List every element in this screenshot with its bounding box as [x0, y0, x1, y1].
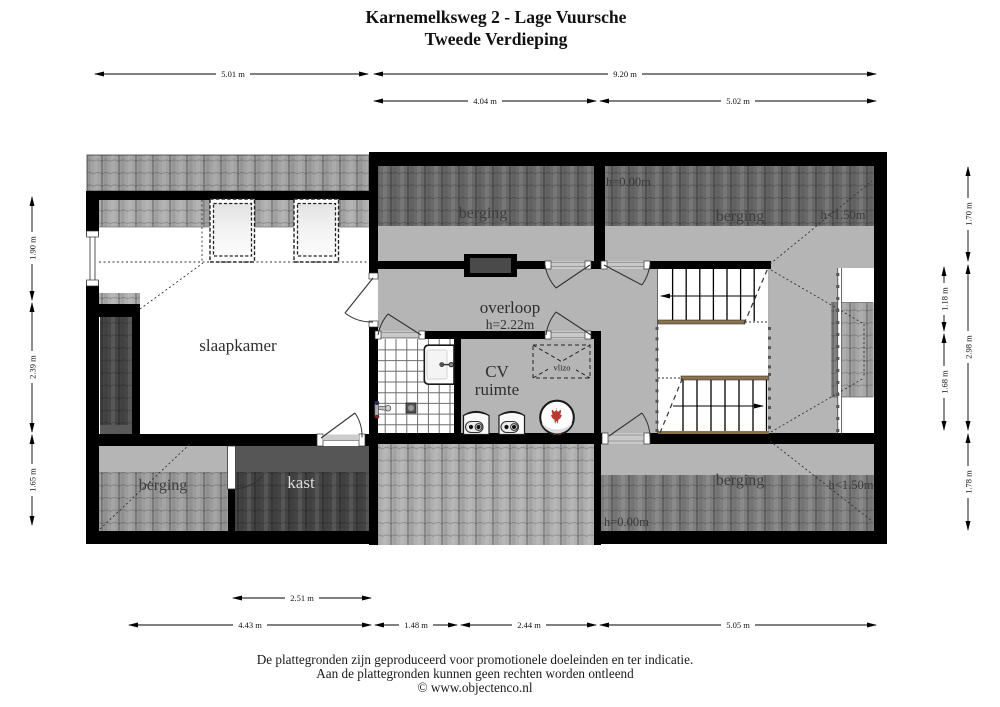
svg-text:1.70 m: 1.70 m: [964, 202, 974, 226]
svg-text:De plattegronden zijn geproduc: De plattegronden zijn geproduceerd voor …: [257, 652, 694, 667]
svg-text:Karnemelksweg 2 - Lage Vuursch: Karnemelksweg 2 - Lage Vuursche: [366, 7, 627, 27]
svg-text:1.65 m: 1.65 m: [28, 468, 38, 492]
svg-text:1.18 m: 1.18 m: [940, 287, 950, 311]
svg-text:berging: berging: [716, 472, 765, 489]
svg-text:h=0.00m: h=0.00m: [604, 515, 649, 529]
svg-text:2.44 m: 2.44 m: [517, 620, 541, 630]
svg-text:2.98 m: 2.98 m: [964, 335, 974, 359]
svg-text:slaapkamer: slaapkamer: [199, 336, 277, 355]
svg-text:© www.objectenco.nl: © www.objectenco.nl: [418, 680, 533, 695]
svg-text:9.20 m: 9.20 m: [613, 69, 637, 79]
svg-text:5.01 m: 5.01 m: [221, 69, 245, 79]
svg-text:h=2.22m: h=2.22m: [486, 317, 535, 332]
svg-text:overloop: overloop: [480, 298, 540, 317]
svg-text:4.43 m: 4.43 m: [238, 620, 262, 630]
svg-text:vlizo: vlizo: [554, 363, 571, 373]
svg-text:2.39 m: 2.39 m: [28, 355, 38, 379]
svg-text:berging: berging: [716, 208, 765, 225]
svg-text:1.48 m: 1.48 m: [404, 620, 428, 630]
svg-text:berging: berging: [139, 477, 188, 494]
svg-text:ruimte: ruimte: [475, 380, 519, 399]
svg-text:5.02 m: 5.02 m: [726, 96, 750, 106]
svg-text:1.68 m: 1.68 m: [940, 370, 950, 394]
svg-text:h=0.00m: h=0.00m: [606, 175, 651, 189]
svg-text:2.51 m: 2.51 m: [290, 593, 314, 603]
svg-text:Tweede Verdieping: Tweede Verdieping: [425, 29, 568, 49]
svg-text:5.05 m: 5.05 m: [726, 620, 750, 630]
svg-text:4.04 m: 4.04 m: [473, 96, 497, 106]
svg-text:1.90 m: 1.90 m: [28, 236, 38, 260]
svg-text:berging: berging: [459, 205, 508, 222]
svg-text:CV: CV: [485, 362, 509, 381]
svg-text:h<1.50m: h<1.50m: [821, 208, 866, 222]
svg-text:1.78 m: 1.78 m: [964, 470, 974, 494]
svg-text:kast: kast: [287, 473, 315, 492]
svg-text:Aan de plattegronden kunnen ge: Aan de plattegronden kunnen geen rechten…: [316, 666, 634, 681]
svg-text:h<1.50m: h<1.50m: [829, 478, 874, 492]
